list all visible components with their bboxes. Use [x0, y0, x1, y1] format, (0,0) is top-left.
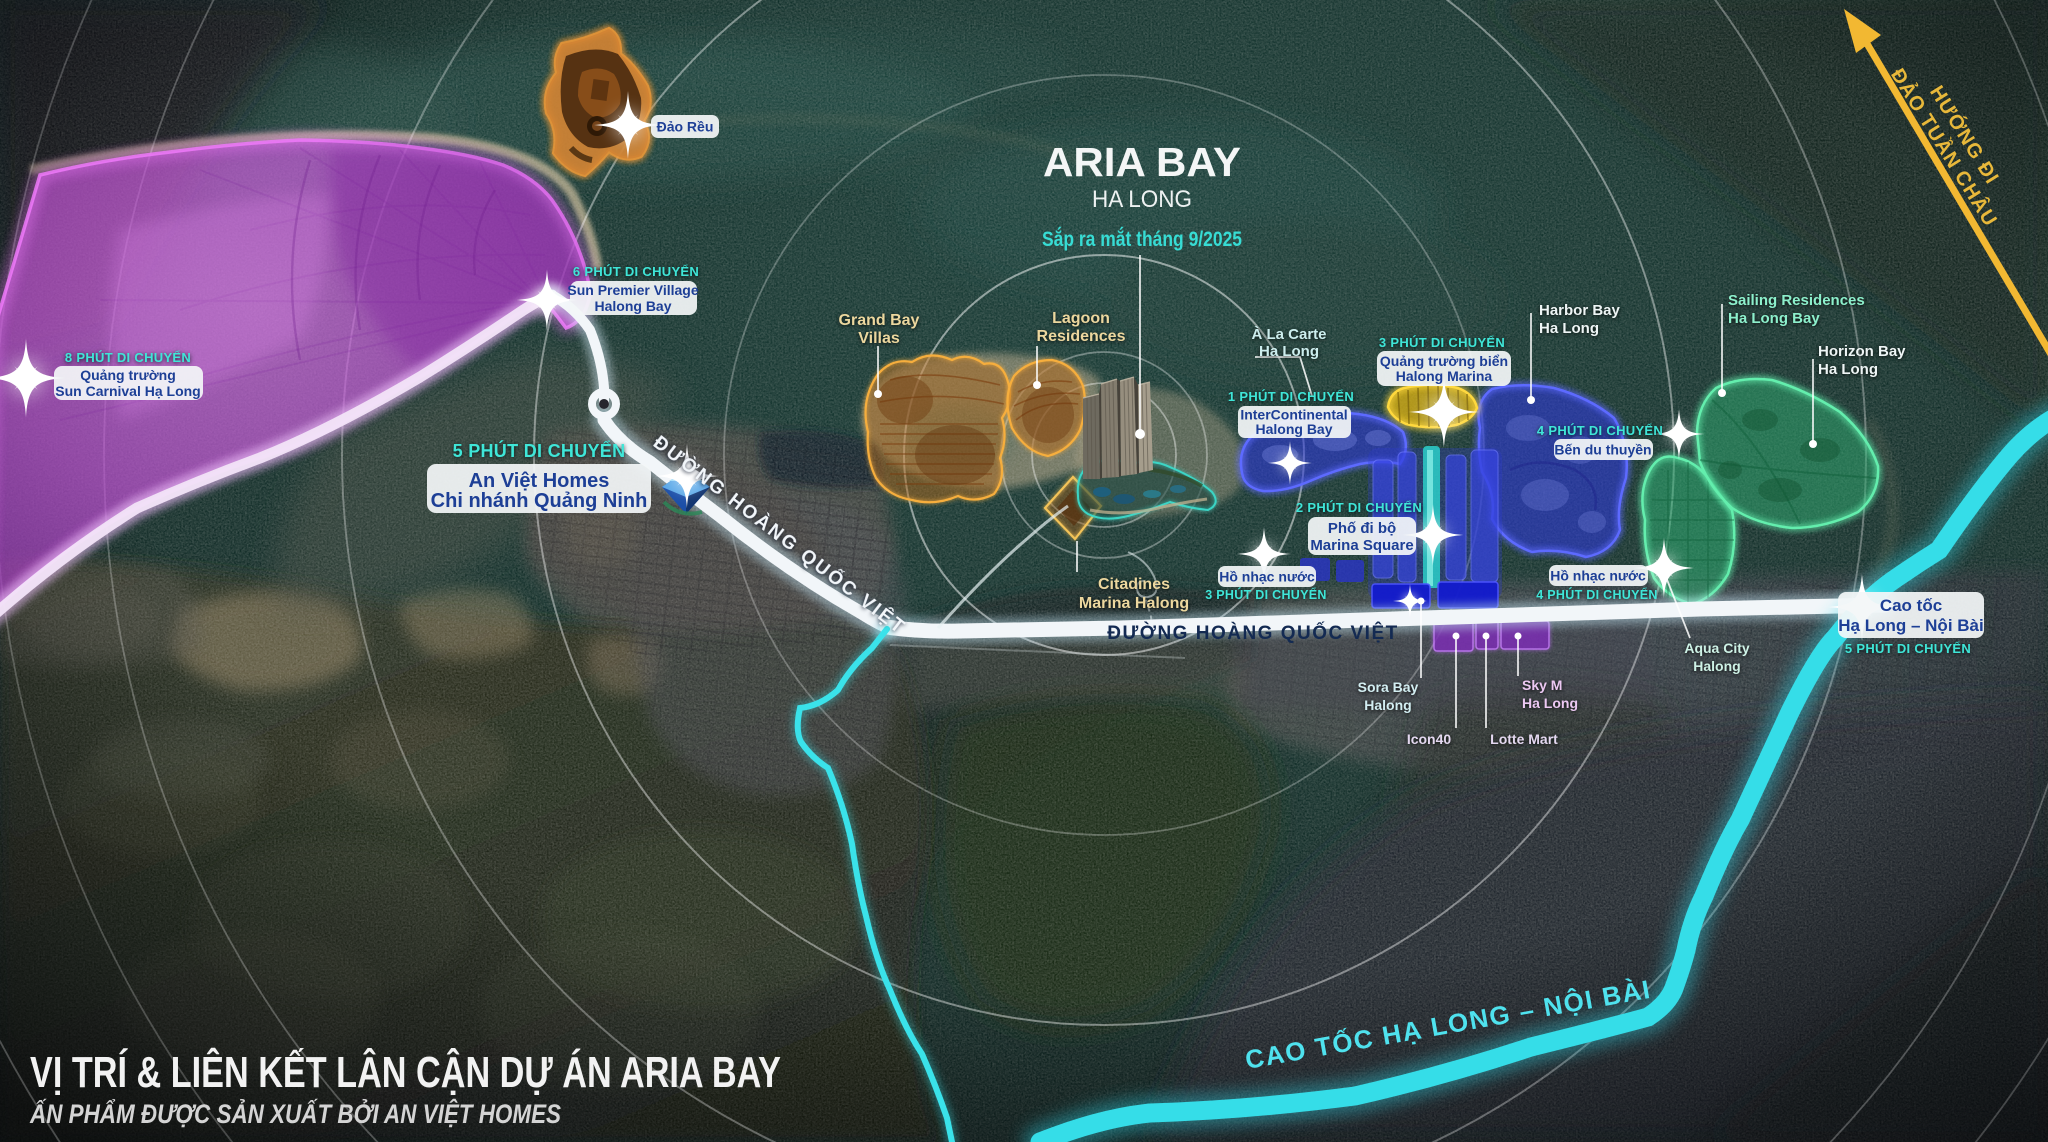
- svg-text:Halong Bay: Halong Bay: [1255, 421, 1332, 437]
- svg-text:Sắp ra mắt tháng 9/2025: Sắp ra mắt tháng 9/2025: [1042, 227, 1242, 251]
- svg-text:Halong Bay: Halong Bay: [594, 298, 671, 314]
- svg-text:Hạ Long – Nội Bài: Hạ Long – Nội Bài: [1838, 616, 1983, 635]
- svg-text:Ha Long Bay: Ha Long Bay: [1728, 310, 1820, 327]
- svg-text:Aqua City: Aqua City: [1684, 640, 1750, 656]
- svg-text:4 PHÚT DI CHUYỂN: 4 PHÚT DI CHUYỂN: [1536, 587, 1657, 602]
- svg-text:3 PHÚT DI CHUYỂN: 3 PHÚT DI CHUYỂN: [1205, 587, 1326, 602]
- svg-text:Bến du thuyền: Bến du thuyền: [1554, 442, 1651, 458]
- svg-text:Halong: Halong: [1693, 658, 1740, 674]
- svg-text:5 PHÚT DI CHUYỂN: 5 PHÚT DI CHUYỂN: [1845, 641, 1971, 656]
- svg-text:1 PHÚT DI CHUYỂN: 1 PHÚT DI CHUYỂN: [1228, 389, 1354, 404]
- svg-text:ĐƯỜNG HOÀNG QUỐC VIỆT: ĐƯỜNG HOÀNG QUỐC VIỆT: [1107, 622, 1398, 644]
- svg-text:HA LONG: HA LONG: [1092, 186, 1192, 213]
- svg-text:2 PHÚT DI CHUYỂN: 2 PHÚT DI CHUYỂN: [1296, 500, 1422, 515]
- svg-text:Sora Bay: Sora Bay: [1358, 679, 1419, 695]
- svg-text:Harbor Bay: Harbor Bay: [1539, 302, 1621, 319]
- svg-text:Phố đi bộ: Phố đi bộ: [1328, 520, 1396, 537]
- svg-text:Ha Long: Ha Long: [1539, 320, 1599, 337]
- svg-text:Icon40: Icon40: [1407, 731, 1452, 747]
- svg-text:Hồ nhạc nước: Hồ nhạc nước: [1550, 568, 1646, 584]
- svg-text:Halong Marina: Halong Marina: [1396, 368, 1493, 384]
- svg-text:VỊ TRÍ & LIÊN KẾT LÂN CẬN DỰ Á: VỊ TRÍ & LIÊN KẾT LÂN CẬN DỰ ÁN ARIA BAY: [30, 1047, 781, 1097]
- svg-text:Residences: Residences: [1037, 328, 1126, 345]
- svg-text:6 PHÚT DI CHUYỂN: 6 PHÚT DI CHUYỂN: [573, 264, 699, 279]
- svg-text:Sky M: Sky M: [1522, 677, 1562, 693]
- svg-text:4 PHÚT DI CHUYỂN: 4 PHÚT DI CHUYỂN: [1537, 423, 1663, 438]
- svg-text:Sun Premier Village: Sun Premier Village: [567, 282, 698, 298]
- svg-text:Grand Bay: Grand Bay: [839, 312, 920, 329]
- svg-text:Quảng trường biển: Quảng trường biển: [1380, 353, 1508, 369]
- svg-text:Ha Long: Ha Long: [1259, 343, 1319, 360]
- svg-text:Ha Long: Ha Long: [1522, 695, 1578, 711]
- svg-text:Quảng trường: Quảng trường: [80, 367, 176, 383]
- svg-text:ARIA BAY: ARIA BAY: [1043, 139, 1241, 185]
- svg-text:ẤN PHẨM ĐƯỢC SẢN XUẤT BỞI AN V: ẤN PHẨM ĐƯỢC SẢN XUẤT BỞI AN VIỆT HOMES: [29, 1097, 561, 1129]
- svg-text:8 PHÚT DI CHUYỂN: 8 PHÚT DI CHUYỂN: [65, 350, 191, 365]
- svg-text:Marina Square: Marina Square: [1310, 537, 1413, 554]
- svg-text:Citadines: Citadines: [1098, 576, 1170, 593]
- svg-text:Ha Long: Ha Long: [1818, 361, 1878, 378]
- svg-text:5 PHÚT DI CHUYỂN: 5 PHÚT DI CHUYỂN: [453, 440, 626, 461]
- svg-text:An Việt Homes: An Việt Homes: [469, 470, 610, 492]
- svg-text:Marina Halong: Marina Halong: [1079, 595, 1189, 612]
- svg-text:Hồ nhạc nước: Hồ nhạc nước: [1219, 569, 1315, 585]
- svg-text:3 PHÚT DI CHUYỂN: 3 PHÚT DI CHUYỂN: [1379, 335, 1505, 350]
- svg-text:Sun Carnival Hạ Long: Sun Carnival Hạ Long: [55, 383, 200, 399]
- svg-text:Lagoon: Lagoon: [1052, 310, 1110, 327]
- svg-text:Villas: Villas: [858, 330, 900, 347]
- svg-text:Chi nhánh Quảng Ninh: Chi nhánh Quảng Ninh: [431, 490, 648, 512]
- svg-text:Sailing Residences: Sailing Residences: [1728, 292, 1865, 309]
- svg-text:Lotte Mart: Lotte Mart: [1490, 731, 1558, 747]
- svg-text:Halong: Halong: [1364, 697, 1411, 713]
- svg-text:Đảo Rều: Đảo Rều: [657, 119, 714, 135]
- svg-text:À La Carte: À La Carte: [1251, 326, 1326, 343]
- svg-text:Cao tốc: Cao tốc: [1880, 596, 1942, 615]
- svg-text:Horizon Bay: Horizon Bay: [1818, 343, 1906, 360]
